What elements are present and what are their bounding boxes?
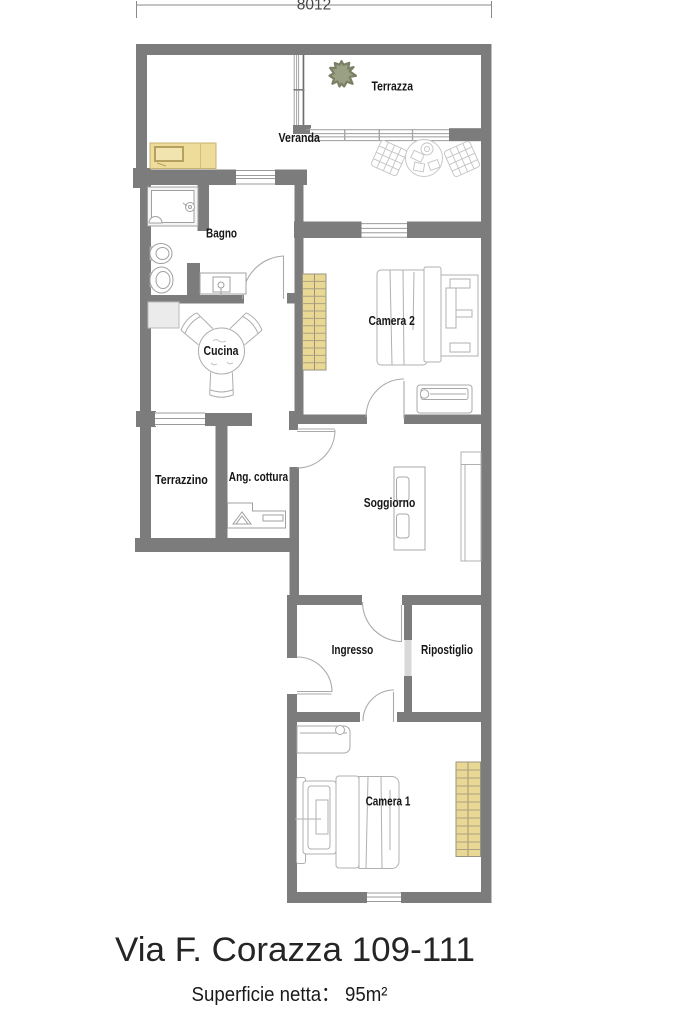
svg-text:8012: 8012 <box>297 0 331 14</box>
svg-text:Camera 1: Camera 1 <box>366 795 411 809</box>
svg-text:Camera 2: Camera 2 <box>369 314 415 328</box>
svg-text:Via F. Corazza 109-111: Via F. Corazza 109-111 <box>115 931 475 969</box>
svg-text:Ang. cottura: Ang. cottura <box>229 470 289 484</box>
svg-text:Soggiorno: Soggiorno <box>364 496 416 510</box>
svg-text:Veranda: Veranda <box>279 131 321 145</box>
svg-text:Ripostiglio: Ripostiglio <box>421 643 473 657</box>
svg-text:Bagno: Bagno <box>206 227 237 241</box>
svg-text:Superficie netta： 95m²: Superficie netta： 95m² <box>192 983 388 1006</box>
svg-text:Ingresso: Ingresso <box>332 643 374 657</box>
svg-text:Terrazza: Terrazza <box>372 79 414 93</box>
svg-text:Cucina: Cucina <box>204 344 240 358</box>
svg-text:Terrazzino: Terrazzino <box>155 473 208 487</box>
